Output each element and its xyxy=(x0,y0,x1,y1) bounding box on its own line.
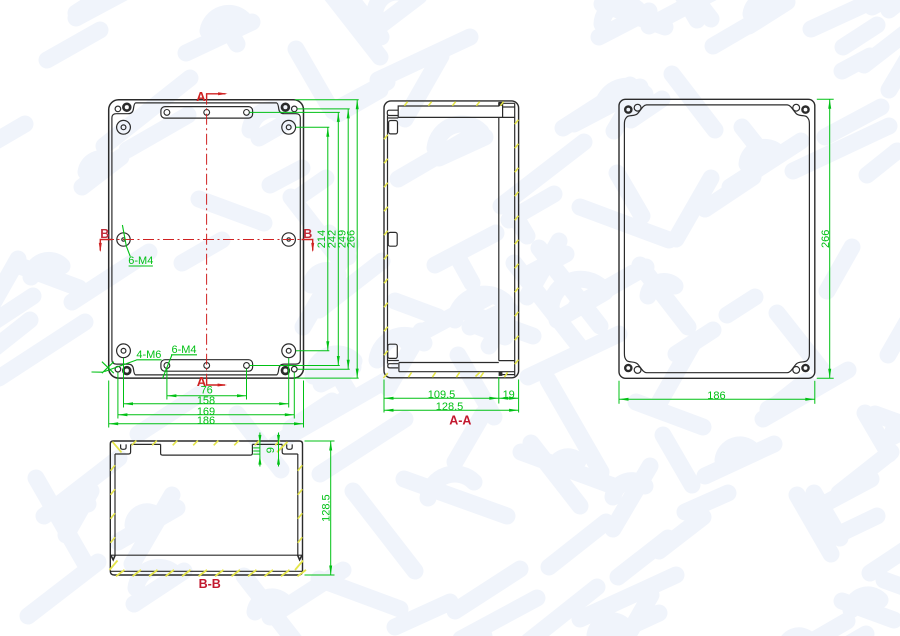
svg-text:19: 19 xyxy=(503,389,515,401)
svg-text:A-A: A-A xyxy=(449,413,471,427)
svg-text:9: 9 xyxy=(265,447,277,453)
svg-text:128.5: 128.5 xyxy=(321,494,333,522)
svg-text:186: 186 xyxy=(197,415,215,427)
svg-text:266: 266 xyxy=(820,230,832,248)
svg-text:A: A xyxy=(196,89,206,104)
svg-text:186: 186 xyxy=(707,390,725,402)
svg-text:B-B: B-B xyxy=(199,577,221,591)
svg-text:B: B xyxy=(100,227,109,241)
svg-text:128.5: 128.5 xyxy=(436,401,464,413)
svg-text:4-M6: 4-M6 xyxy=(136,349,161,361)
svg-text:109.5: 109.5 xyxy=(428,389,456,401)
svg-text:6-M4: 6-M4 xyxy=(171,344,196,356)
svg-text:266: 266 xyxy=(345,230,357,248)
svg-text:6-M4: 6-M4 xyxy=(128,255,153,267)
svg-text:B: B xyxy=(303,227,312,241)
